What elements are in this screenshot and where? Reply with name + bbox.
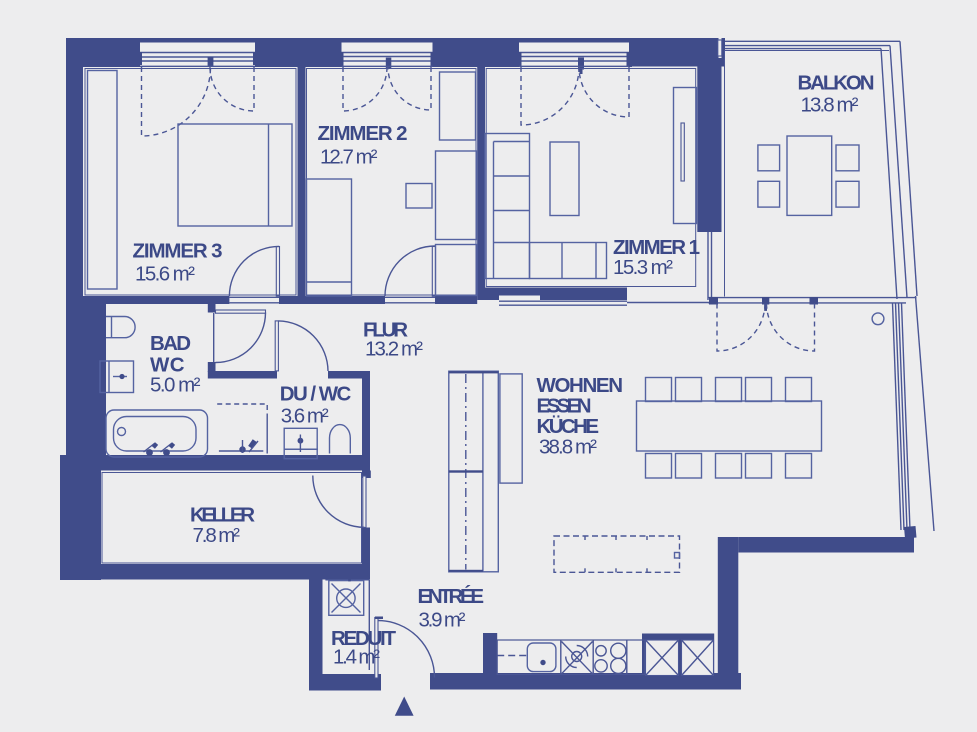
svg-text:38.8 m²: 38.8 m² [539,436,597,459]
svg-text:ZIMMER 2: ZIMMER 2 [318,122,408,145]
svg-text:7.8 m²: 7.8 m² [193,524,241,547]
svg-text:3.6 m²: 3.6 m² [281,405,329,428]
svg-text:ENTRÉE: ENTRÉE [418,585,485,608]
svg-text:3.9 m²: 3.9 m² [419,609,466,632]
svg-text:DU / WC: DU / WC [280,383,352,406]
svg-text:12.7 m²: 12.7 m² [320,146,378,169]
svg-text:13.2 m²: 13.2 m² [365,338,423,361]
svg-text:5.0 m²: 5.0 m² [150,374,201,397]
svg-text:13.8 m²: 13.8 m² [801,94,859,117]
svg-text:BAD: BAD [150,332,191,355]
svg-text:15.3 m²: 15.3 m² [613,256,673,279]
svg-text:1.4 m²: 1.4 m² [333,646,380,669]
svg-text:15.6 m²: 15.6 m² [135,263,195,286]
svg-text:BALKON: BALKON [798,72,875,95]
svg-text:ZIMMER 3: ZIMMER 3 [133,240,223,263]
